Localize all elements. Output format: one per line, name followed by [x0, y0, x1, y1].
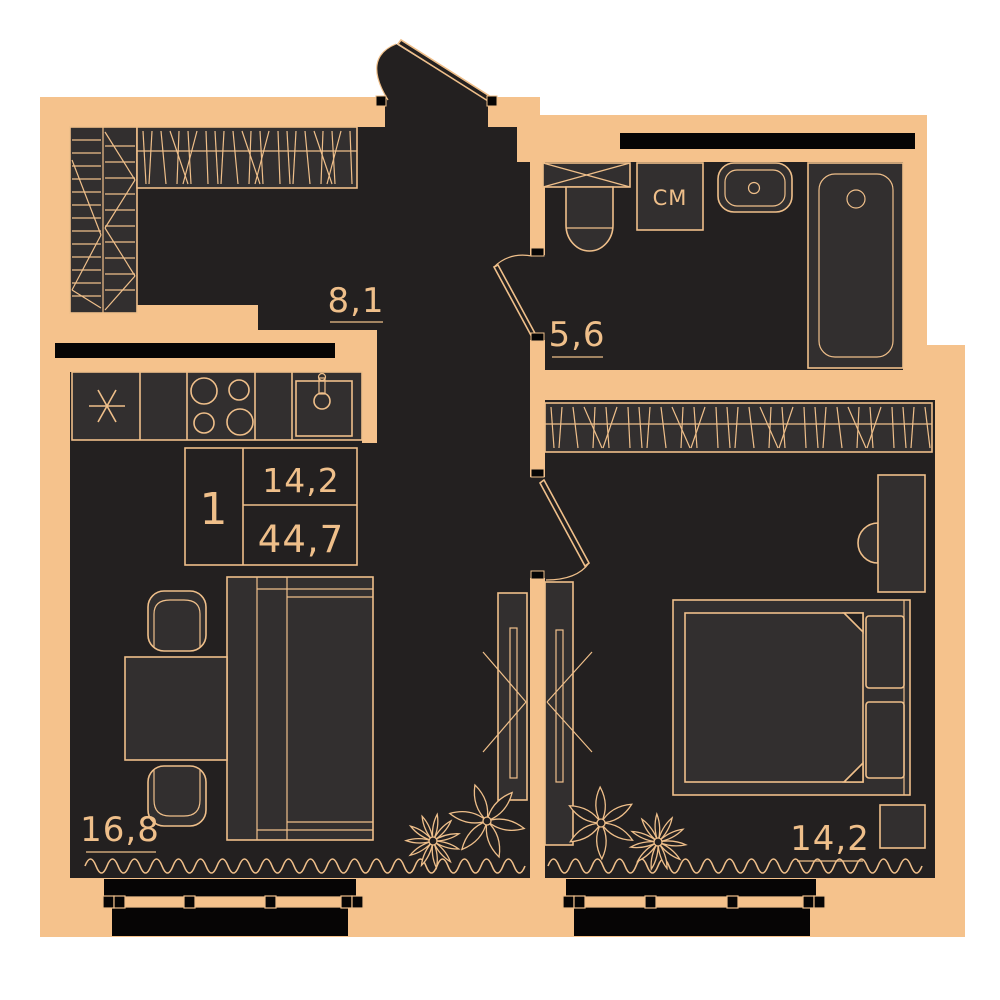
- wall-kitchen-return: [362, 330, 377, 443]
- washing-machine: СМ: [637, 163, 703, 230]
- wall-stripe-bathroom: [620, 133, 915, 149]
- info-living-area: 14,2: [262, 461, 339, 500]
- bathroom-sink: [718, 163, 792, 212]
- wardrobe-bedroom: [545, 403, 932, 452]
- floor-plan-drawing: 1 14,2 44,7 СМ: [0, 0, 1000, 1000]
- entrance-door-swing-area: [377, 44, 488, 101]
- sofa-bed: [227, 577, 373, 840]
- kitchen-counter: [72, 372, 362, 440]
- pillow-top: [866, 616, 904, 688]
- table: [125, 657, 227, 760]
- duvet: [685, 613, 863, 782]
- info-rooms-count: 1: [200, 484, 229, 535]
- entrance-opening: [385, 97, 488, 127]
- bedroom-door-opening: [530, 477, 545, 578]
- chair-top: [148, 591, 206, 651]
- label-bedroom: 14,2: [790, 819, 870, 861]
- living-room-area-value: 16,8: [80, 810, 160, 850]
- label-hallway: 8,1: [327, 281, 384, 322]
- label-living-room: 16,8: [80, 810, 160, 852]
- info-total-area: 44,7: [258, 518, 344, 561]
- bedroom-area-value: 14,2: [790, 819, 870, 859]
- bathtub: [808, 163, 903, 368]
- bathroom-area-value: 5,6: [548, 315, 605, 355]
- label-bathroom: 5,6: [548, 315, 605, 357]
- hallway-area-value: 8,1: [327, 281, 384, 321]
- window-left: [103, 879, 363, 936]
- wardrobe-hall-top: [137, 127, 357, 188]
- washing-machine-label: СМ: [653, 186, 688, 210]
- apartment-floor-plan: 1 14,2 44,7 СМ: [0, 0, 1000, 1000]
- info-box: 1 14,2 44,7: [185, 448, 357, 565]
- wall-stripe-kitchen: [55, 343, 335, 358]
- dresser: [878, 475, 925, 592]
- wardrobe-cabinet: [70, 127, 137, 313]
- window-right: [563, 879, 825, 936]
- pillow-bottom: [866, 702, 904, 778]
- nightstand: [880, 805, 925, 848]
- double-bed: [673, 600, 910, 795]
